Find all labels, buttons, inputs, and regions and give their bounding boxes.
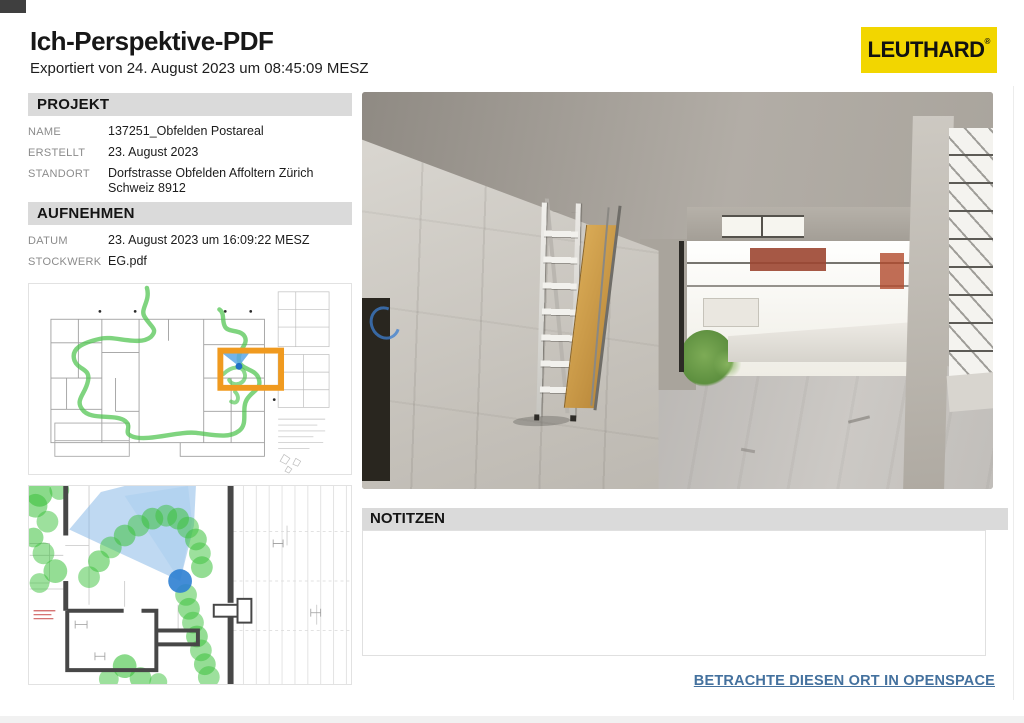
detail-row-name: NAME 137251_Obfelden Postareal: [28, 124, 352, 139]
detail-row-datum: DATUM 23. August 2023 um 16:09:22 MESZ: [28, 233, 352, 248]
page-right-edge: [1013, 86, 1014, 700]
window-corner-artifact: [0, 0, 26, 13]
floorplan-overview-drawing: [29, 284, 351, 474]
detail-row-stockwerk: STOCKWERK EG.pdf: [28, 254, 352, 269]
scaffold-red-boards: [750, 248, 826, 271]
floorplan-zoom-image: [28, 485, 352, 685]
export-timestamp: Exportiert von 24. August 2023 um 08:45:…: [30, 60, 369, 77]
ladder-foot: [534, 414, 540, 421]
openspace-link[interactable]: BETRACHTE DIESEN ORT IN OPENSPACE: [362, 673, 995, 689]
photo-dark-joint: [679, 241, 685, 372]
section-header-projekt: PROJEKT: [28, 93, 352, 116]
detail-label: STOCKWERK: [28, 254, 108, 269]
photo-right-sill: [946, 372, 993, 412]
detail-label: DATUM: [28, 233, 108, 248]
detail-value: 23. August 2023 um 16:09:22 MESZ: [108, 233, 348, 248]
floorplan-zoom-drawing: [29, 486, 351, 684]
camera-position-marker: [168, 569, 192, 593]
detail-row-standort: STANDORT Dorfstrasse Obfelden Affoltern …: [28, 166, 352, 196]
scaffold-red-boards: [880, 253, 905, 289]
projekt-details: NAME 137251_Obfelden Postareal ERSTELLT …: [28, 124, 352, 196]
aufnehmen-details: DATUM 23. August 2023 um 16:09:22 MESZ S…: [28, 233, 352, 269]
pdf-export-page: Ich-Perspektive-PDF Exportiert von 24. A…: [0, 0, 1024, 723]
detail-label: NAME: [28, 124, 108, 139]
detail-row-erstellt: ERSTELLT 23. August 2023: [28, 145, 352, 160]
ladder-foot: [570, 415, 576, 422]
detail-value: 23. August 2023: [108, 145, 348, 160]
detail-label: STANDORT: [28, 166, 108, 196]
section-header-notitzen: NOTITZEN: [362, 508, 1008, 530]
notes-content-box: [362, 530, 986, 656]
detail-value: Dorfstrasse Obfelden Affoltern Zürich Sc…: [108, 166, 348, 196]
scaffold-rail: [687, 285, 911, 287]
detail-value: 137251_Obfelden Postareal: [108, 124, 348, 139]
detail-label: ERSTELLT: [28, 145, 108, 160]
section-header-aufnehmen: AUFNEHMEN: [28, 202, 352, 225]
camera-position-dot: [236, 363, 243, 370]
material-stack: [703, 298, 759, 328]
page-bottom-edge: [0, 716, 1024, 723]
floorplan-overview-image: [28, 283, 352, 475]
photo-clerestory-window: [722, 215, 804, 238]
detail-value: EG.pdf: [108, 254, 348, 269]
registered-trademark-icon: ®: [985, 37, 991, 46]
site-photo: [362, 92, 993, 489]
photo-right-window: [949, 128, 993, 378]
page-title: Ich-Perspektive-PDF: [30, 26, 273, 57]
leuthard-logo: LEUTHARD®: [861, 27, 997, 73]
left-column: PROJEKT NAME 137251_Obfelden Postareal E…: [28, 93, 352, 685]
leuthard-logo-text: LEUTHARD: [868, 37, 985, 63]
